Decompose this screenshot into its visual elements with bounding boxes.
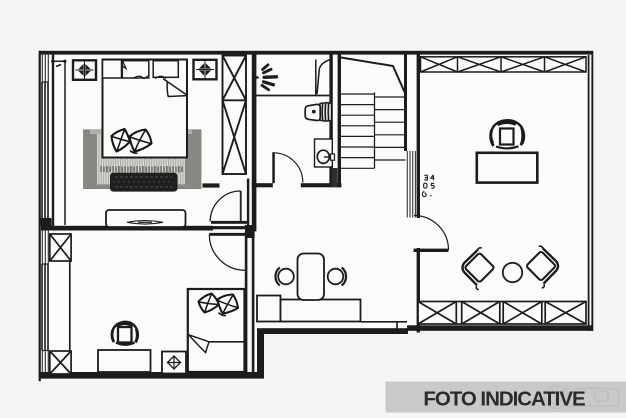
svg-text:FOTO INDICATIVE: FOTO INDICATIVE [423, 388, 585, 411]
